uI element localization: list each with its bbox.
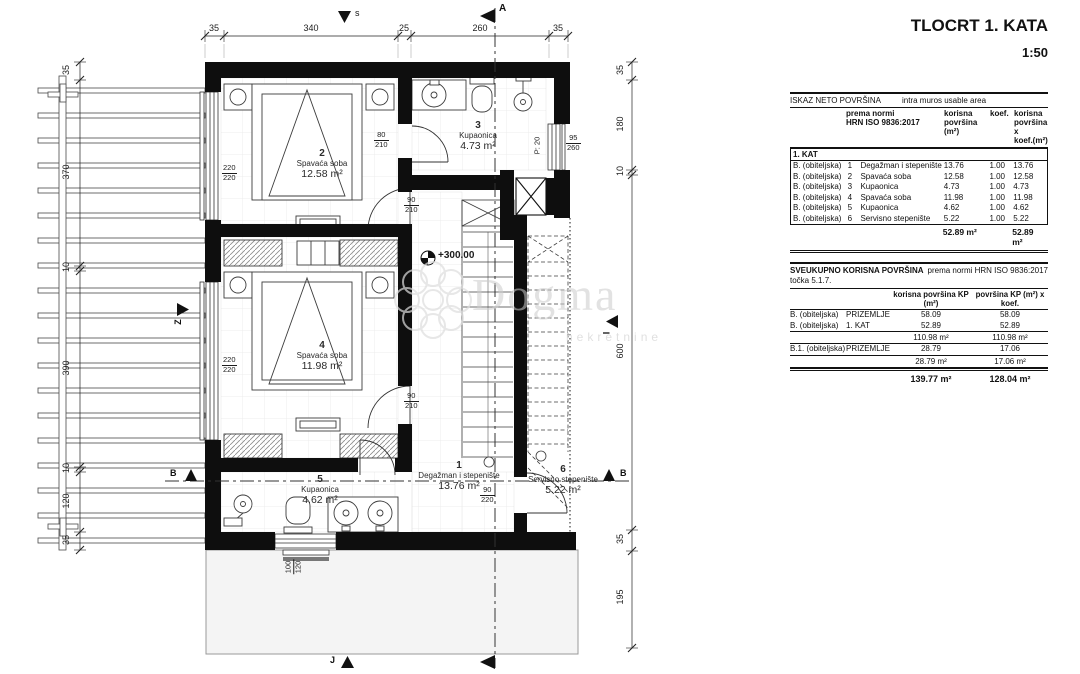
summary-column-headers: korisna površina KP (m²) površina KP (m²… <box>790 289 1048 310</box>
dim-left-1: 370 <box>61 157 71 187</box>
terrace-below <box>206 550 578 654</box>
dim-right-3: 600 <box>615 336 625 366</box>
sheet-title: TLOCRT 1. KATA <box>820 16 1048 36</box>
dim-top-3: 260 <box>460 23 500 33</box>
section-a-flag-top <box>480 9 495 23</box>
table-row: B. (obiteljska) 1. KAT 52.89 52.89 <box>790 321 1048 332</box>
section-a-flag-bottom <box>480 655 495 669</box>
dim-top-4: 35 <box>548 23 568 33</box>
window-size-bed2: 220 220 <box>222 164 237 182</box>
net-table-column-headers: prema normi HRN ISO 9836:2017 korisna po… <box>790 108 1048 148</box>
level-label: +300.00 <box>438 250 474 261</box>
table-row: B. (obiteljska) 6 Servisno stepenište 5.… <box>791 214 1047 225</box>
net-table-section: 1. KAT <box>790 148 1048 160</box>
dim-left-0: 35 <box>61 55 71 85</box>
net-table-subtitle: intra muros usable area <box>902 96 986 105</box>
room-5-name: Kupaonica <box>280 485 360 494</box>
section-b-flag-left <box>185 469 197 481</box>
net-total-area: 52.89 m² <box>943 227 1012 247</box>
table-row: B. (obiteljska) 4 Spavaća soba 11.98 1.0… <box>791 193 1047 204</box>
table-row: B. (obiteljska) 1 Degažman i stepenište … <box>791 161 1047 172</box>
room-6-area: 5.22 m² <box>518 484 608 496</box>
north-marker-icon <box>338 11 351 23</box>
net-table-title: ISKAZ NETO POVRŠINA <box>790 96 902 105</box>
dim-right-2: 10 <box>615 156 625 186</box>
room-2-name: Spavaća soba <box>282 159 362 168</box>
room-label-6: 6 Servisno stepenište 5.22 m² <box>518 464 608 496</box>
summary-subtotal-2: 28.79 m² 17.06 m² <box>790 355 1048 368</box>
south-marker-icon <box>341 656 354 668</box>
room-6-name: Servisno stepenište <box>518 475 608 484</box>
table-row: B. (obiteljska) PRIZEMLJE 58.09 58.09 <box>790 310 1048 321</box>
dim-top-1: 340 <box>291 23 331 33</box>
main-staircase <box>462 200 546 467</box>
dim-right-4: 35 <box>615 524 625 554</box>
title-block: TLOCRT 1. KATA 1:50 <box>820 16 1048 61</box>
dim-top-2: 25 <box>394 23 414 33</box>
dim-top-0: 35 <box>204 23 224 33</box>
summary-total-row: 139.77 m² 128.04 m² <box>790 368 1048 386</box>
dim-left-6: 35 <box>61 525 71 555</box>
room-4-area: 11.98 m² <box>282 360 362 372</box>
sheet-scale: 1:50 <box>820 45 1048 61</box>
dim-left-3: 390 <box>61 353 71 383</box>
dim-left-5: 120 <box>61 486 71 516</box>
room-label-4: 4 Spavaća soba 11.98 m² <box>282 340 362 372</box>
room-3-name: Kupaonica <box>438 131 518 140</box>
room-5-area: 4.62 m² <box>280 494 360 506</box>
floor-plan-sheet: Dogma nekretnine 2 Spavaća soba 12.58 m²… <box>0 0 1080 674</box>
window-size-bed4: 220 220 <box>222 356 237 374</box>
table-row: B. (obiteljska) 2 Spavaća soba 12.58 1.0… <box>791 172 1047 183</box>
dim-left-4: 10 <box>61 453 71 483</box>
west-marker-label: Z <box>173 319 183 325</box>
room-4-name: Spavaća soba <box>282 351 362 360</box>
room-label-3: 3 Kupaonica 4.73 m² <box>438 120 518 152</box>
net-area-table: ISKAZ NETO POVRŠINA intra muros usable a… <box>790 92 1048 253</box>
watermark-name: Dogma <box>472 268 617 321</box>
window-size-bath3: 95 260 <box>566 134 581 152</box>
door-size-bath3: 80 210 <box>374 131 389 149</box>
dim-right-0: 35 <box>615 55 625 85</box>
shaft <box>516 178 546 215</box>
net-table-total-row: 52.89 m² 52.89 m² <box>790 225 1048 253</box>
room-2-number: 2 <box>282 148 362 159</box>
table-row: B. (obiteljska) 3 Kupaonica 4.73 1.00 4.… <box>791 182 1047 193</box>
net-total-koef: 52.89 m² <box>1012 227 1046 247</box>
north-marker-label: s <box>355 8 360 18</box>
door-size-bed2: 90 210 <box>404 196 419 214</box>
section-b-label-right: B <box>620 468 627 478</box>
room-1-number: 1 <box>413 460 505 471</box>
section-a-label: A <box>499 3 506 14</box>
dim-left-2: 10 <box>61 252 71 282</box>
room-5-number: 5 <box>280 474 360 485</box>
door-size-service: 90 220 <box>480 486 495 504</box>
room-6-number: 6 <box>518 464 608 475</box>
summary-table: SVEUKUPNO KORISNA POVRŠINAprema normi HR… <box>790 262 1048 386</box>
room-label-2: 2 Spavaća soba 12.58 m² <box>282 148 362 180</box>
dim-right-5: 195 <box>615 582 625 612</box>
door-size-bed4: 90 210 <box>404 392 419 410</box>
table-row: B. (obiteljska) 5 Kupaonica 4.62 1.00 4.… <box>791 203 1047 214</box>
room-3-area: 4.73 m² <box>438 140 518 152</box>
area-tables: ISKAZ NETO POVRŠINA intra muros usable a… <box>790 92 1048 386</box>
room-label-5: 5 Kupaonica 4.62 m² <box>280 474 360 506</box>
parapet-label: P: 20 <box>533 131 542 161</box>
summary-table-title: SVEUKUPNO KORISNA POVRŠINAprema normi HR… <box>790 262 1048 289</box>
summary-subtotal-1: 110.98 m² 110.98 m² <box>790 331 1048 344</box>
south-marker-label: J <box>330 655 335 665</box>
room-3-number: 3 <box>438 120 518 131</box>
room-1-name: Degažman i stepenište <box>413 471 505 480</box>
section-b-label-left: B <box>170 468 177 478</box>
window-size-bath5: 100 120 <box>284 560 302 575</box>
room-4-number: 4 <box>282 340 362 351</box>
room-2-area: 12.58 m² <box>282 168 362 180</box>
table-row: B.1. (obiteljska) PRIZEMLJE 28.79 17.06 <box>790 344 1048 355</box>
east-marker-label: I <box>601 332 611 335</box>
dim-right-1: 180 <box>615 109 625 139</box>
